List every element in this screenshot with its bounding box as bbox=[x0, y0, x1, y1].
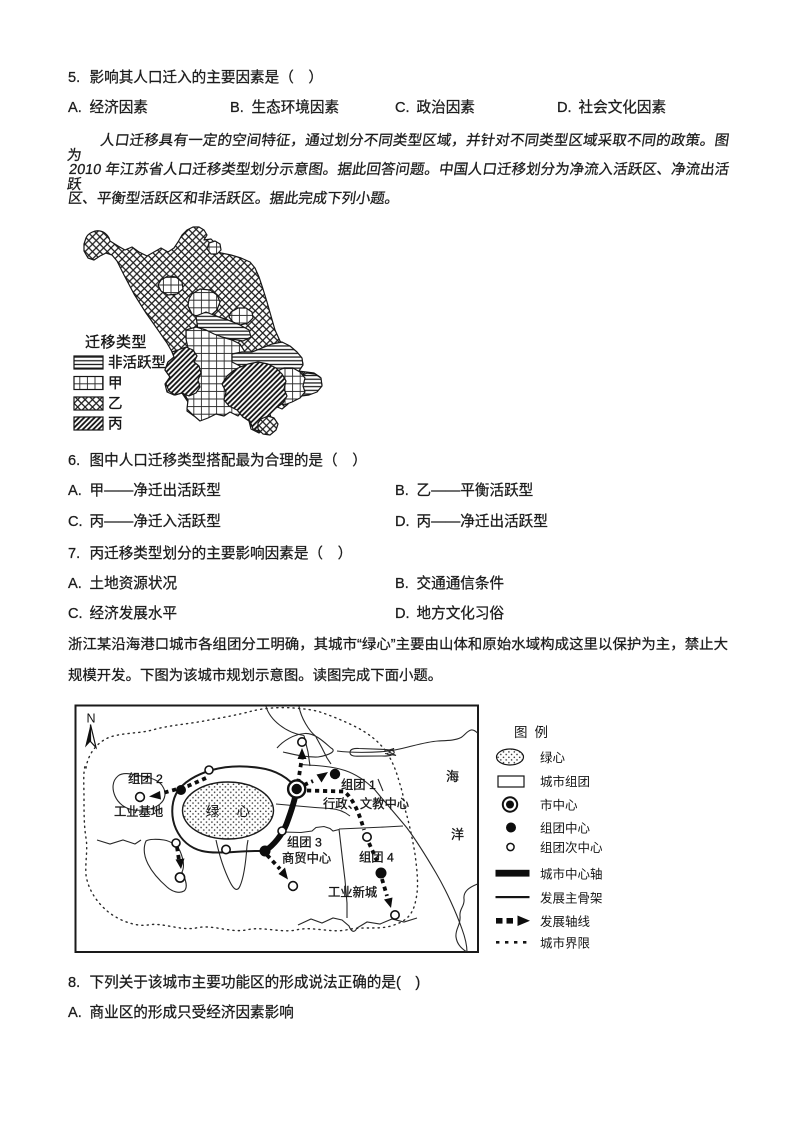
svg-text:商贸中心: 商贸中心 bbox=[282, 851, 331, 866]
svg-text:组团中心: 组团中心 bbox=[540, 821, 591, 836]
svg-text:城市界限: 城市界限 bbox=[540, 936, 591, 951]
svg-text:海: 海 bbox=[446, 769, 459, 784]
svg-text:城市中心轴: 城市中心轴 bbox=[540, 867, 603, 882]
svg-text:组团 2: 组团 2 bbox=[128, 772, 163, 786]
svg-text:组团 3: 组团 3 bbox=[287, 836, 322, 850]
svg-text:工业新城: 工业新城 bbox=[328, 885, 377, 900]
svg-text:城市组团: 城市组团 bbox=[540, 774, 590, 789]
svg-text:工业基地: 工业基地 bbox=[114, 805, 163, 819]
svg-text:图例: 图例 bbox=[514, 725, 555, 740]
svg-text:绿心: 绿心 bbox=[206, 804, 267, 819]
svg-text:市中心: 市中心 bbox=[540, 798, 578, 813]
svg-text:组团次中心: 组团次中心 bbox=[540, 840, 603, 855]
svg-text:洋: 洋 bbox=[451, 827, 464, 842]
svg-text:发展轴线: 发展轴线 bbox=[540, 914, 591, 929]
svg-text:发展主骨架: 发展主骨架 bbox=[540, 891, 603, 906]
svg-text:组团 1: 组团 1 bbox=[341, 778, 376, 792]
svg-text:行政、文教中心: 行政、文教中心 bbox=[323, 796, 409, 811]
svg-text:N: N bbox=[87, 712, 96, 726]
svg-text:绿心: 绿心 bbox=[540, 750, 566, 765]
svg-text:组团 4: 组团 4 bbox=[359, 851, 394, 865]
